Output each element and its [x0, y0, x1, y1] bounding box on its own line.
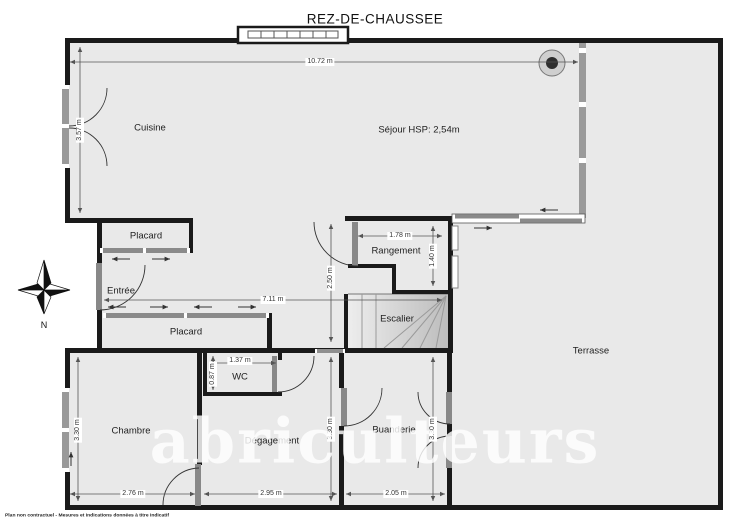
dim-degagement-width: 2.95 m — [258, 490, 283, 498]
room-label-placard-haut: Placard — [130, 231, 162, 242]
room-label-degagement: Dégagement — [245, 436, 299, 447]
disclaimer-text: Plan non contractuel - Mesures et indica… — [5, 512, 169, 518]
dim-rangement-width: 1.78 m — [387, 232, 412, 240]
dim-chambre-height: 3.30 m — [74, 417, 82, 442]
dim-chambre-width: 2.76 m — [120, 490, 145, 498]
dim-buanderie-width: 2.05 m — [383, 490, 408, 498]
dim-couloir-width: 7.11 m — [261, 296, 286, 304]
dim-sejour-mid-height: 2.50 m — [327, 265, 335, 290]
dim-wc-width: 1.37 m — [227, 357, 252, 365]
room-label-terrasse: Terrasse — [573, 346, 609, 357]
room-label-sejour: Séjour HSP: 2,54m — [378, 125, 459, 136]
room-label-cuisine: Cuisine — [134, 123, 166, 134]
stove-icon — [539, 50, 565, 76]
bay-window — [238, 27, 348, 43]
floor-area — [52, 41, 720, 507]
page-title: REZ-DE-CHAUSSEE — [307, 12, 444, 27]
room-label-placard-bas: Placard — [170, 327, 202, 338]
room-label-buanderie: Buanderie — [372, 425, 415, 436]
floor-plan: REZ-DE-CHAUSSEE Cuisine Séjour HSP: 2,54… — [0, 0, 750, 530]
room-label-escalier: Escalier — [380, 314, 414, 325]
dim-sejour-width: 10.72 m — [305, 58, 334, 66]
room-label-chambre: Chambre — [111, 426, 150, 437]
dim-degagement-height: 3.30 m — [327, 416, 335, 441]
room-label-entree: Entrée — [107, 286, 135, 297]
floor-plan-drawing — [0, 0, 750, 530]
dim-wc-height: 0.87 m — [209, 361, 217, 386]
dim-buanderie-height: 3.30 m — [429, 416, 437, 441]
dim-cuisine-height: 3.57 m — [76, 117, 84, 142]
dim-rangement-height: 1.40 m — [429, 243, 437, 268]
room-label-rangement: Rangement — [371, 246, 420, 257]
compass-north-label: N — [41, 320, 48, 330]
room-label-wc: WC — [232, 372, 248, 383]
